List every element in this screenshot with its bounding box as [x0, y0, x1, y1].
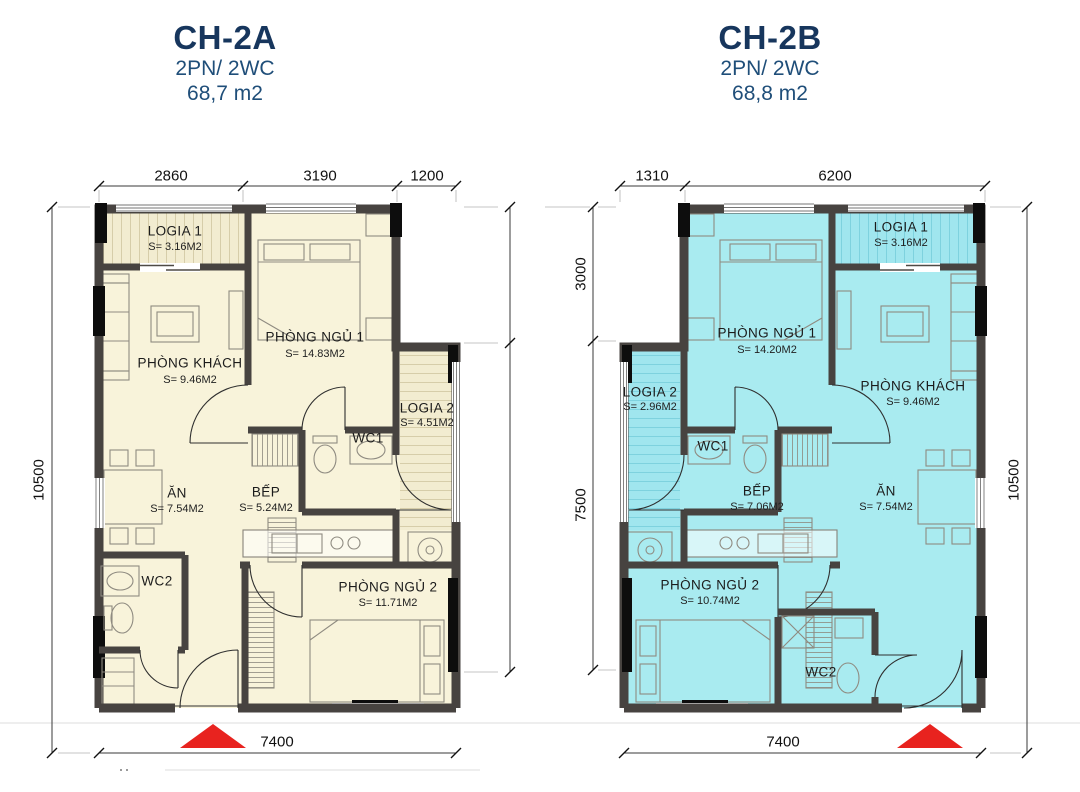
room-area-logia2-a: S= 4.51M2 [400, 417, 454, 429]
dim-left-2-b: 7500 [573, 488, 590, 521]
plan-title-ch2b: CH-2B [718, 19, 821, 57]
room-label-an-b: ĂN [876, 484, 896, 499]
logia2-hatch-b [624, 347, 680, 530]
room-label-ngu1-a: PHÒNG NGỦ 1 [266, 330, 365, 345]
room-label-ngu2-b: PHÒNG NGỦ 2 [661, 578, 760, 593]
room-label-bep-a: BẾP [252, 485, 280, 500]
room-area-ngu2-a: S= 11.71M2 [359, 597, 418, 609]
room-area-khach-a: S= 9.46M2 [163, 374, 217, 386]
room-label-wc2-a: WC2 [141, 574, 172, 589]
dim-bottom-a: 7400 [260, 734, 293, 751]
room-area-ngu2-b: S= 10.74M2 [680, 595, 740, 607]
room-label-ngu1-b: PHÒNG NGỦ 1 [718, 326, 817, 341]
plan-subtitle-ch2a: 2PN/ 2WC [175, 57, 274, 81]
dim-left-1-b: 3000 [573, 257, 590, 290]
plan-subtitle-ch2b: 2PN/ 2WC [720, 57, 819, 81]
room-area-logia2-b: S= 2.96M2 [623, 401, 677, 413]
room-label-wc1-a: WC1 [352, 431, 383, 446]
room-label-wc1-b: WC1 [697, 439, 728, 454]
plan-area-ch2b: 68,8 m2 [732, 82, 808, 106]
dim-side-a: 10500 [31, 459, 48, 501]
artifact-dots [126, 769, 128, 771]
plan-area-ch2a: 68,7 m2 [187, 82, 263, 106]
dim-top-1-a: 2860 [154, 168, 187, 185]
dim-side-b: 10500 [1006, 459, 1023, 501]
logia2-hatch-a [400, 347, 456, 530]
dim-top-2-a: 3190 [303, 168, 336, 185]
room-area-khach-b: S= 9.46M2 [886, 396, 940, 408]
dim-bottom-b: 7400 [766, 734, 799, 751]
room-area-an-a: S= 7.54M2 [150, 503, 204, 515]
room-area-ngu1-b: S= 14.20M2 [737, 344, 797, 356]
floorplan-sheet: CH-2A 2PN/ 2WC 68,7 m2 CH-2B 2PN/ 2WC 68… [0, 0, 1080, 792]
room-label-wc2-b: WC2 [805, 665, 836, 680]
artifact-dots [120, 769, 122, 771]
room-label-logia2-a: LOGIA 2 [400, 401, 455, 416]
entrance-marker-b [897, 724, 963, 748]
room-label-logia1-a: LOGIA 1 [148, 224, 203, 239]
entrance-marker-a [180, 724, 246, 748]
room-area-bep-b: S= 7.06M2 [730, 501, 784, 513]
room-label-bep-b: BẾP [743, 484, 771, 499]
dim-top-3-a: 1200 [410, 168, 443, 185]
room-label-logia1-b: LOGIA 1 [874, 220, 929, 235]
plan-ch2b [619, 202, 987, 713]
room-area-an-b: S= 7.54M2 [859, 501, 913, 513]
room-label-khach-b: PHÒNG KHÁCH [861, 379, 966, 394]
room-area-logia1-a: S= 3.16M2 [148, 241, 202, 253]
room-label-logia2-b: LOGIA 2 [623, 385, 678, 400]
dim-top-1-b: 1310 [635, 168, 668, 185]
plan-title-ch2a: CH-2A [173, 19, 276, 57]
plan-ch2a [93, 202, 461, 713]
room-label-an-a: ĂN [167, 486, 187, 501]
room-label-khach-a: PHÒNG KHÁCH [138, 356, 243, 371]
room-area-bep-a: S= 5.24M2 [239, 502, 293, 514]
room-area-logia1-b: S= 3.16M2 [874, 237, 928, 249]
room-area-ngu1-a: S= 14.83M2 [285, 348, 345, 360]
dim-top-2-b: 6200 [818, 168, 851, 185]
room-label-ngu2-a: PHÒNG NGỦ 2 [339, 580, 438, 595]
